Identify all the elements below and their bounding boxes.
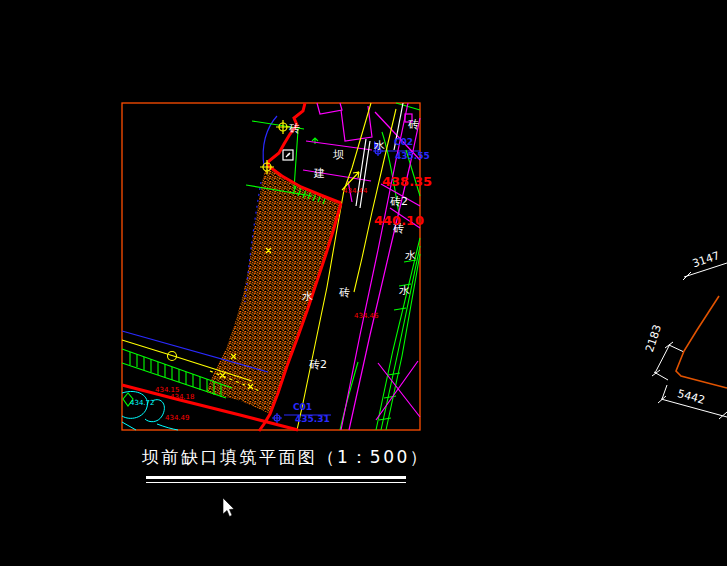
water-label-2: 水 [405, 250, 416, 261]
survey-point-c02: C02 [394, 138, 413, 147]
build-label: 建 [314, 168, 325, 179]
slope-edge-polyline [676, 296, 727, 388]
cad-viewport[interactable]: 砖坝建水砖砖2砖水水水砖砖2438.35440.10434.44434.4643… [0, 0, 727, 566]
elevation-434-49: 434.49 [165, 415, 190, 422]
elevation-434-44: 434.44 [343, 188, 368, 195]
title-underline-thin [146, 482, 406, 483]
elevation-434-18: 434.18 [170, 394, 195, 401]
water-label-4: 水 [302, 291, 313, 302]
elevation-434-72: 434.72 [130, 400, 155, 407]
brick2-label-1: 砖2 [390, 196, 408, 207]
elevation-440-10: 440.10 [374, 214, 424, 227]
water-label-1: 水 [374, 140, 385, 151]
elevation-434-46: 434.46 [354, 313, 379, 320]
brick2-label-2: 砖2 [309, 359, 327, 370]
brick-label-4: 砖 [339, 287, 350, 298]
water-label-3: 水 [399, 285, 410, 296]
dam-label: 坝 [333, 149, 344, 160]
elevation-435-55: 435.55 [395, 152, 430, 161]
brick-label-2: 砖 [408, 119, 419, 130]
mouse-cursor [223, 498, 234, 517]
elevation-435-31: 435.31 [295, 415, 330, 424]
fill-area-hatch [206, 164, 341, 414]
title-underline-thick [146, 476, 406, 479]
brick-label-1: 砖 [289, 123, 300, 134]
elevation-438-35: 438.35 [382, 175, 432, 188]
survey-point-c01: C01 [293, 403, 312, 412]
drawing-title: 坝前缺口填筑平面图（1：500） [142, 447, 429, 467]
